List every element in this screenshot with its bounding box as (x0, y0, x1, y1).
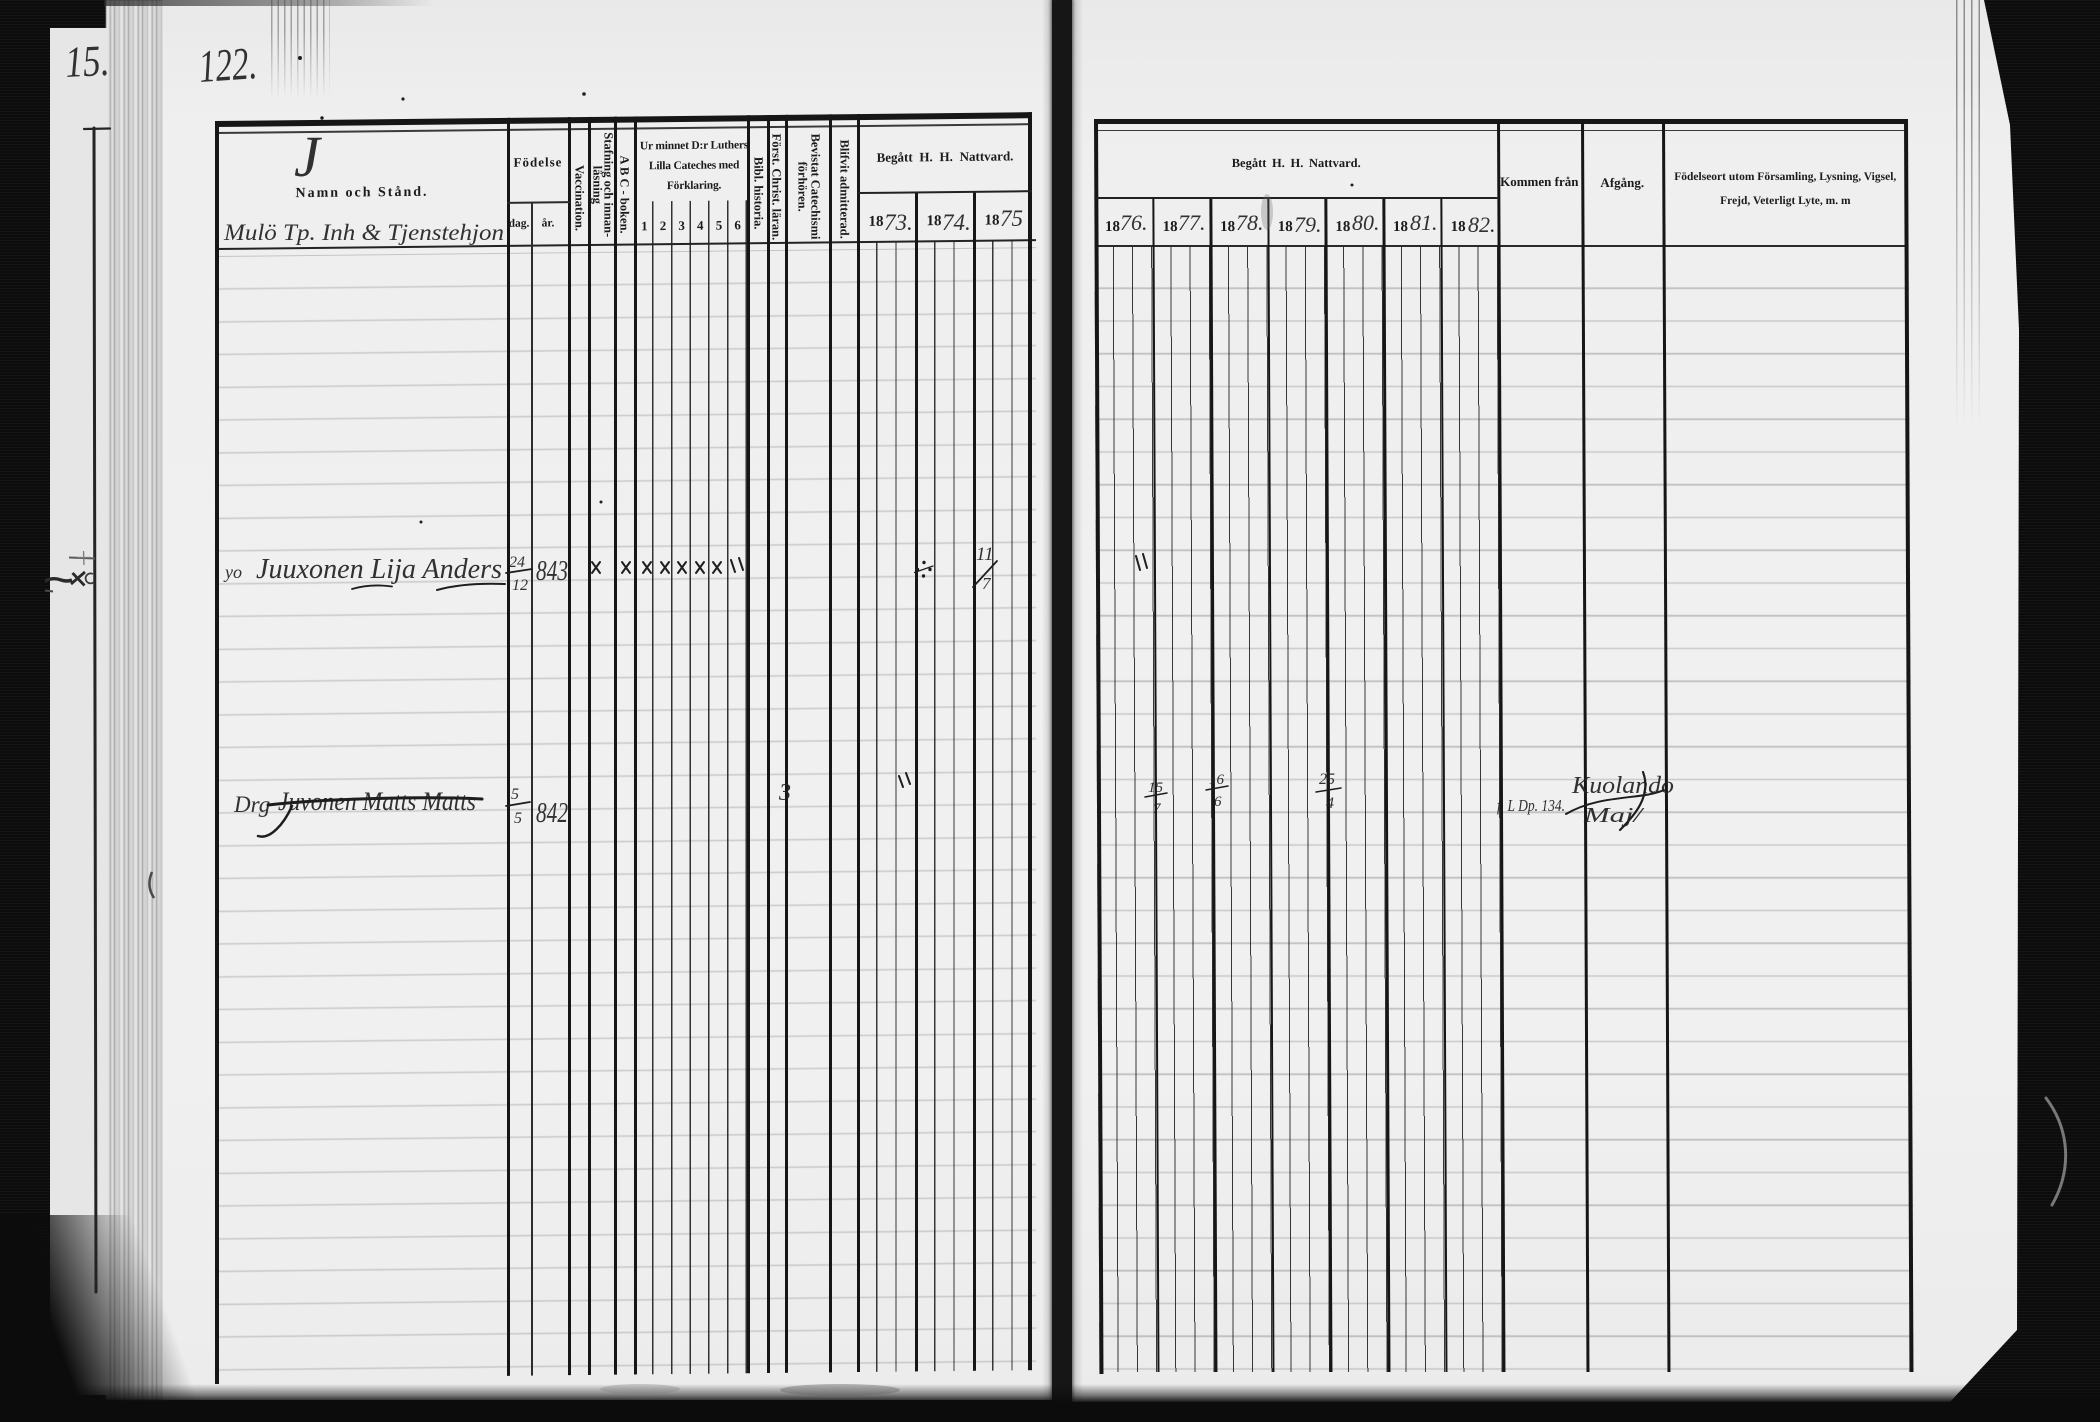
svg-text:24: 24 (509, 554, 525, 571)
svg-text:Drg: Drg (233, 792, 270, 817)
svg-text:J: J (294, 124, 323, 189)
svg-text:77.: 77. (1178, 210, 1206, 235)
svg-text:f. L Dp. 134.: f. L Dp. 134. (1497, 796, 1565, 815)
svg-text:81.: 81. (1410, 210, 1438, 235)
svg-text:16: 16 (1209, 772, 1225, 788)
svg-text:80.: 80. (1352, 210, 1380, 235)
svg-text:122.: 122. (197, 37, 258, 92)
svg-text:12: 12 (512, 577, 528, 594)
svg-text:25: 25 (1319, 771, 1335, 788)
svg-text:842: 842 (536, 797, 568, 829)
svg-text:7: 7 (1153, 801, 1162, 817)
svg-text:3: 3 (778, 780, 791, 806)
svg-text:11: 11 (976, 544, 994, 565)
svg-text:4: 4 (1326, 795, 1334, 812)
svg-text:15.: 15. (64, 36, 111, 87)
svg-text:73.: 73. (884, 210, 913, 235)
svg-text:6: 6 (1214, 794, 1222, 810)
svg-text:Kuolando: Kuolando (1571, 773, 1674, 799)
svg-text:5: 5 (514, 810, 522, 827)
svg-text:Juuxonen Lija Anders: Juuxonen Lija Anders (256, 554, 502, 585)
svg-text:78.: 78. (1236, 210, 1264, 235)
svg-text:74.: 74. (942, 210, 971, 235)
svg-text:843: 843 (536, 555, 568, 587)
svg-text:79.: 79. (1294, 212, 1322, 237)
svg-text:Maj/: Maj/ (1583, 803, 1646, 827)
svg-text:Mulö Tp. Inh & Tjenstehjon: Mulö Tp. Inh & Tjenstehjon (223, 220, 504, 245)
svg-text:75: 75 (1000, 206, 1023, 231)
svg-text:82.: 82. (1468, 212, 1496, 237)
svg-text:76.: 76. (1120, 210, 1148, 235)
svg-text:yo: yo (223, 562, 242, 582)
svg-text:5: 5 (511, 786, 519, 803)
